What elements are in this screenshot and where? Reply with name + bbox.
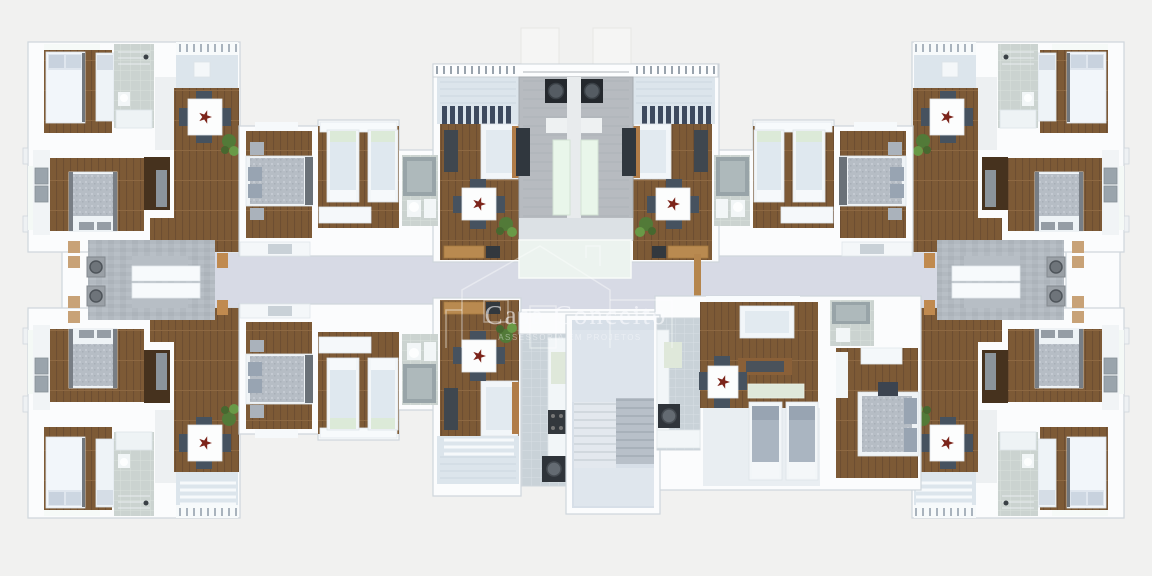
svg-text:ASSESSORIA EM PROJETOS: ASSESSORIA EM PROJETOS: [498, 333, 642, 342]
svg-text:Casa Conceito: Casa Conceito: [485, 300, 668, 330]
